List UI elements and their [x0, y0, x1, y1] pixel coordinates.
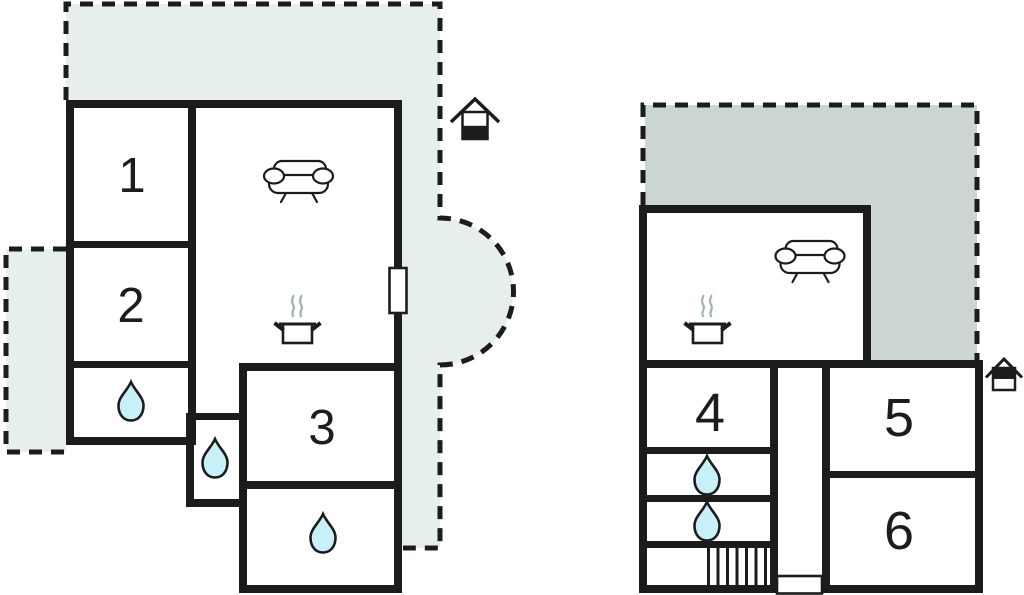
water-drop-icon: [311, 514, 336, 553]
house-level-upper-icon: [986, 359, 1022, 390]
floor-plan: 1 2 3 4 5 6: [0, 0, 1024, 595]
water-drop-icon: [119, 382, 144, 421]
room-number-6: 6: [884, 501, 914, 561]
stairs-icon: [709, 548, 766, 585]
sofa-icon: [776, 241, 845, 282]
room-number-1: 1: [118, 149, 145, 203]
left-unit-walls: [66, 100, 402, 593]
left-terraces: [6, 4, 514, 548]
left-unit-door-symbol: [390, 268, 407, 313]
sofa-icon: [264, 161, 333, 202]
cooking-pot-icon: [275, 295, 321, 343]
room-number-2: 2: [117, 279, 144, 333]
house-level-ground-icon: [451, 99, 499, 139]
water-drop-icon: [695, 502, 720, 541]
room-number-5: 5: [884, 388, 914, 448]
steam-lines: [292, 295, 302, 317]
water-drop-icon: [203, 439, 228, 478]
floor-plan-page: 1 2 3 4 5 6: [0, 0, 1024, 595]
terrace-bump-fill: [440, 218, 514, 365]
water-drop-icon: [695, 456, 720, 495]
terrace-right-strip-fill: [402, 100, 440, 548]
steam-lines: [702, 295, 712, 317]
terrace-top-fill: [66, 4, 440, 100]
right-unit-door-symbol: [777, 576, 822, 594]
room-number-3: 3: [308, 401, 335, 455]
room-number-4: 4: [695, 383, 725, 443]
cooking-pot-icon: [685, 295, 731, 343]
terrace-left-fill: [6, 249, 66, 452]
